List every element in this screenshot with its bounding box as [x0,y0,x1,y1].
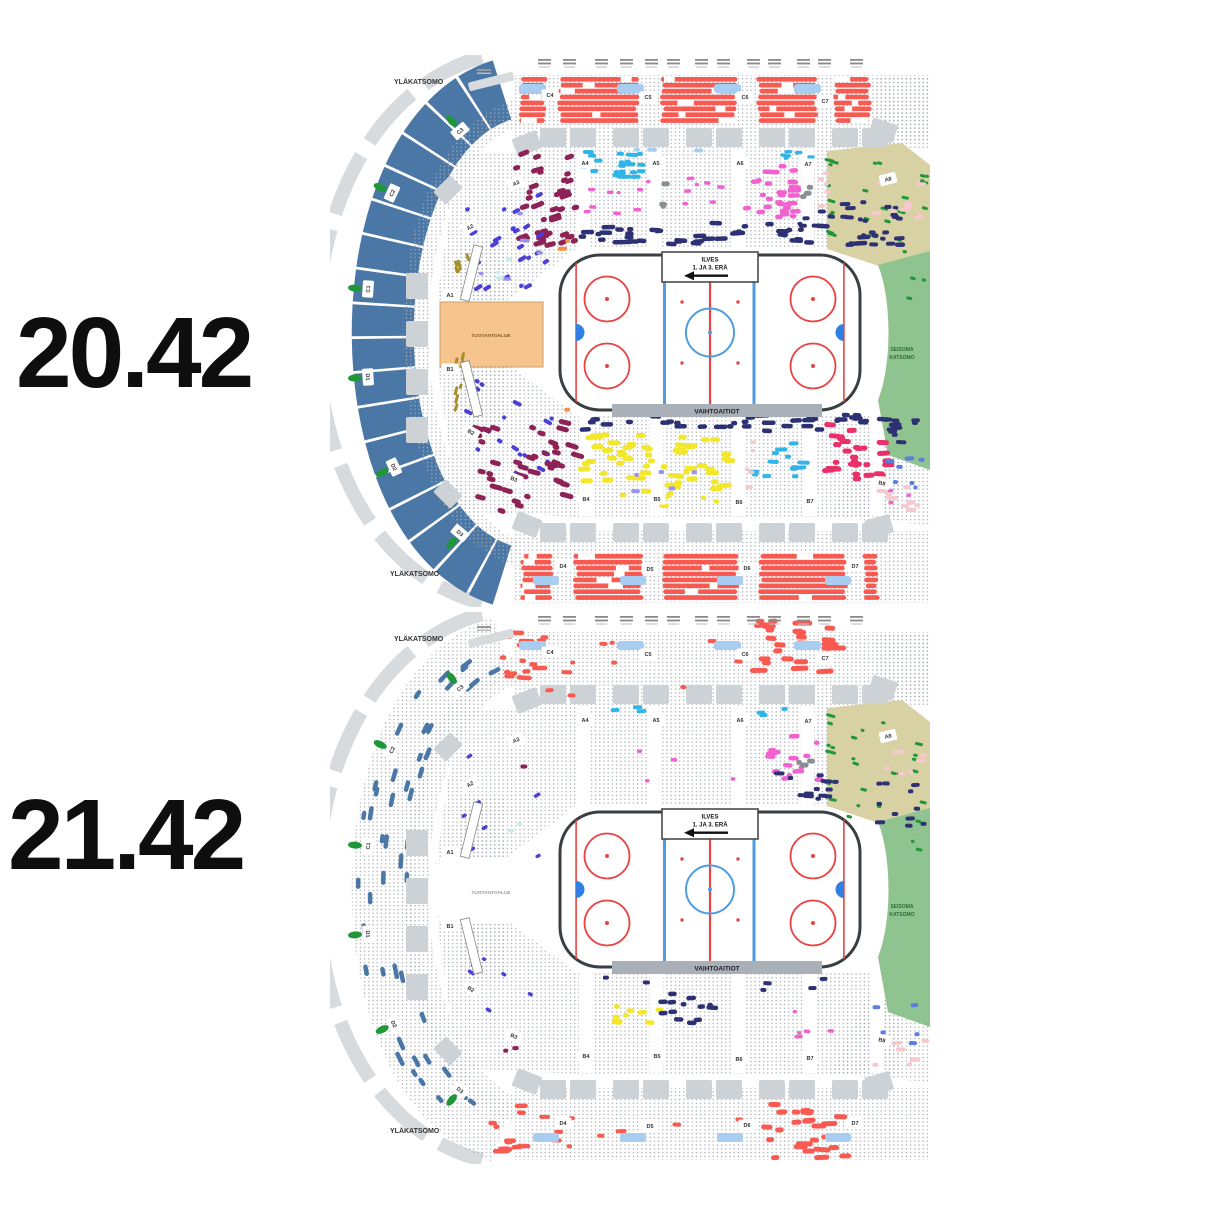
seat-pill [666,241,677,246]
seat-pill [535,853,542,859]
gate-sign-underline [539,623,550,624]
seat-pill [834,418,840,423]
seat-pill [798,222,803,226]
seat-pill [500,655,507,660]
section-label-text: D6 [743,1123,750,1129]
sky-patch [714,84,741,93]
seat-pill [626,1008,634,1013]
seat-pill [606,455,617,461]
sold-row [664,107,737,112]
sold-row [560,95,639,100]
section-label-text: A1 [446,850,453,856]
seat-pill [637,1010,647,1015]
neutral-faceoff-dot [736,918,739,921]
gate-sign-line [645,59,658,61]
seat-pill [701,437,710,442]
seat-pill [614,170,624,174]
sky-patch [533,1133,559,1142]
attack-arrow-shaft [692,832,728,834]
seat-pill [722,451,732,457]
seat-pill [588,188,595,192]
walkway-block [406,417,428,443]
seat-pill [824,422,836,428]
seat-pill [855,445,868,451]
seat-pill [594,159,603,163]
gate-sign-underline [798,66,809,67]
seat-pill [496,271,500,275]
seat-pill [807,185,814,190]
seat-pill [637,749,642,753]
seat-pill [862,219,868,223]
gate-sign-line [818,616,831,618]
walkway-block [613,523,639,542]
gate-sign-line [850,616,863,618]
sold-row [577,572,644,577]
seat-pill [761,1124,773,1130]
walkway-block [686,128,712,147]
seat-pill [667,1000,676,1005]
seat-pill [802,418,815,423]
row-gap [799,595,812,600]
seat-pill [590,169,598,173]
walkway-block [759,1080,785,1099]
seat-pill [776,190,787,195]
tier-label-bottom: YLÄKATSOMO [390,1127,440,1135]
standing-label: KATSOMO [889,355,914,361]
seat-pill [709,200,716,204]
gate-sign-underline [596,623,607,624]
sold-row [756,101,814,106]
seat-pill [714,236,728,241]
section-label-B7: B7 [802,1053,819,1064]
seat-pill [846,815,852,819]
seat-cluster-maroon [520,764,527,768]
walkway-block [686,685,712,704]
seat-pill [804,240,814,245]
seat-pill [767,460,778,465]
seat-pill [522,239,529,243]
seat-pill [911,783,920,787]
seat-pill [821,1121,838,1127]
gate-sign-line [595,620,608,622]
walkway-block [613,685,639,704]
faceoff-dot [811,364,815,368]
gate-sign-underline [621,66,632,67]
seat-pill [914,503,920,507]
row-gap [784,112,794,117]
seat-pill [626,420,633,425]
seat-pill [597,1134,604,1138]
row-gap [524,560,535,565]
seat-pill [788,756,799,761]
gate-sign-line [717,620,730,622]
seat-pill [588,154,596,158]
seat-pill [777,202,786,207]
seat-pill [742,424,752,429]
bench-label: VAIHTOAITIOT [694,966,739,973]
sky-patch [714,641,741,650]
seat-pill [762,474,771,478]
seat-pill [742,420,749,425]
seat-pill [800,1108,811,1114]
section-label-text: A5 [652,718,659,724]
gate-sign-underline [646,623,657,624]
section-label-text: A7 [804,719,811,725]
faceoff-dot [811,921,815,925]
seat-pill [800,194,807,199]
gate-sign-underline [668,623,679,624]
seat-pill [630,170,637,174]
seat-pill [603,976,609,980]
seat-pill [705,467,715,472]
seat-pill [863,472,874,477]
seat-pill [667,491,674,496]
seat-pill [788,180,799,185]
section-label-text: C6 [741,652,748,658]
seat-pill [833,442,842,447]
gate-sign-line [850,63,863,65]
section-label-C7: C7 [817,96,834,107]
bench-label: VAIHTOAITIOT [694,409,739,416]
section-label-B1: B1 [442,921,459,932]
seat-pill [517,822,522,826]
seat-pill [777,232,787,237]
sold-row [558,107,637,112]
seat-pill [578,466,591,472]
seat-pill [898,772,906,776]
seat-pill [616,1129,627,1133]
section-label-D6: D6 [739,563,756,574]
walkway-block [643,685,669,704]
seat-map-snapshot-2[interactable]: C3C2C1D1D2D3C4C5C6C7A3A4A5A6A7A8A2A1B1B2… [330,612,930,1164]
upper-left-fan [436,705,576,864]
gate-sign-underline [769,66,780,67]
end-zone-period: 1. JA 3. ERÄ [692,822,728,829]
sold-row [759,118,816,123]
sold-row [573,560,642,565]
seat-pill [860,200,866,204]
seat-pill [826,172,830,176]
seat-pill [710,437,720,442]
seat-pill [892,750,899,754]
gate-sign-underline [748,66,759,67]
seat-pill [763,981,772,985]
sold-row [864,595,879,600]
seat-pill [768,1102,781,1107]
section-label-C6: C6 [737,92,754,103]
seat-pill [802,216,809,220]
section-label-D4: D4 [555,1118,572,1129]
section-label-D4: D4 [555,561,572,572]
section-label-text: B4 [582,1054,590,1060]
seat-pill [756,178,762,183]
gate-sign-underline [621,623,632,624]
seat-pill [807,155,814,159]
gate-sign-underline [819,66,830,67]
seat-pill [637,169,646,173]
sky-patch [533,576,559,585]
seat-pill [643,464,650,469]
seat-pill [842,413,851,418]
gate-sign-line [695,63,708,65]
seat-pill [697,424,707,429]
seat-pill [905,816,915,820]
gate-sign-underline [769,623,780,624]
sold-row [524,589,551,594]
seat-pill [693,233,706,238]
seat-pill [760,193,766,198]
seat-pill [659,470,665,474]
seat-pill [858,420,869,425]
gate-sign-line [717,616,730,618]
section-label-text: A4 [581,161,589,167]
section-label-B4: B4 [578,1051,595,1062]
seat-pill [624,235,633,240]
seat-pill [792,474,799,478]
seat-pill [818,209,826,213]
seat-pill [637,238,647,243]
gate-sign-line [717,59,730,61]
tier-label-top: YLÄKATSOMO [394,635,444,643]
gate-sign-line [717,63,730,65]
seat-pill [824,182,829,186]
seat-pill [504,1138,516,1143]
seat-pill [876,782,882,786]
seat-pill [579,427,591,432]
faceoff-dot [605,364,609,368]
seat-pill [839,1153,851,1158]
row-gap [529,94,541,99]
seat-pill [691,470,697,474]
seat-pill [905,824,913,828]
gate-sign-line [768,616,781,618]
sold-row [864,566,878,571]
seat-pill [903,485,910,489]
sold-row [832,95,868,100]
standing-label: SEISOMA [890,904,913,910]
gate-sign-underline [564,623,575,624]
faceoff-dot [605,921,609,925]
seat-pill [697,1004,705,1009]
seat-pill [545,688,554,692]
seat-pill [661,181,670,186]
attack-arrow-shaft [692,275,728,277]
center-dot [708,888,712,892]
gate-sign-underline [819,623,830,624]
gate-sign-line [620,616,633,618]
gate-sign-line [563,620,576,622]
ring-seat-pill [381,871,386,885]
sold-row [758,95,817,100]
walkway-block [406,926,428,952]
gate-sign-underline [477,73,491,75]
seat-pill [886,242,896,246]
seat-pill [828,1029,835,1033]
seat-pill [612,1019,623,1024]
gate-sign-line [797,59,810,61]
seat-pill [906,493,911,497]
seat-pill [659,1011,668,1016]
seat-pill [648,458,656,463]
seat-pill [765,222,774,227]
seat-pill [794,659,808,664]
seat-pill [852,476,861,482]
seat-map-snapshot-1[interactable]: C3C2C1D1D2D3C4C5C6C7A3A4A5A6A7A8A2A1B1B2… [330,55,930,607]
aisle [870,972,883,1073]
seat-pill [804,1029,811,1033]
time-label-bottom: 21.42 [8,785,243,885]
gate-sign-line [538,59,551,61]
section-label-C6: C6 [737,649,754,660]
seat-pill [852,472,860,477]
sold-row [866,584,877,589]
center-dot [708,331,712,335]
sold-row [864,560,876,565]
seat-pill [844,215,854,220]
seat-pill [614,1004,620,1009]
sold-row [835,83,871,88]
seat-pill [570,660,575,664]
seat-pill [876,802,882,806]
seat-pill [711,479,719,484]
seat-pill [800,762,809,767]
section-label-text: C6 [741,95,748,101]
seat-pill [797,460,809,465]
seat-pill [830,645,847,650]
seat-pill [622,445,633,450]
seat-pill [660,420,671,425]
seat-pill [496,276,504,280]
row-gap [608,583,623,588]
seat-pill [634,147,640,151]
walkway-block [759,523,785,542]
sold-row [664,595,738,600]
end-zone-period: 1. JA 3. ERÄ [692,265,728,272]
row-gap [525,595,536,600]
seat-pill [775,447,788,451]
sky-patch [717,576,743,585]
seat-pill [786,228,793,233]
seat-pill [905,456,915,460]
section-label-text: C4 [546,93,554,99]
seat-pill [674,1017,684,1022]
row-gap [614,571,625,576]
seat-pill [801,424,813,429]
section-label-C4: C4 [542,647,559,658]
row-gap [710,583,718,588]
seat-pill [599,642,607,646]
seat-pill [581,230,594,235]
row-gap [621,77,632,82]
seat-pill [637,163,646,167]
seat-pill [661,464,668,469]
seat-pill [680,685,686,689]
row-gap [718,118,735,123]
seat-pill [847,428,857,433]
seat-pill [803,753,810,758]
seat-pill [885,459,894,463]
seat-pill [776,1110,785,1115]
seat-pill [888,430,897,434]
gate-sign-line [620,59,633,61]
row-gap [835,77,850,82]
seat-pill [692,240,700,245]
seat-pill [741,224,748,229]
seat-pill [858,217,863,221]
standing-label: SEISOMA [890,347,913,353]
seat-pill [721,456,731,461]
walkway-block [406,878,428,904]
seat-pill [788,193,800,198]
gate-sign-line [797,616,810,618]
production-label: TUOTANTOALUE [471,333,511,339]
row-gap [664,77,675,82]
walkway-block [406,974,428,1000]
gate-sign-line [768,620,781,622]
sold-row [758,589,845,594]
sold-row [864,578,878,583]
seat-pill [822,467,836,473]
row-gap [782,83,794,88]
gate-sign-underline [851,623,862,624]
seat-pill [774,642,786,648]
seat-pill [869,242,878,246]
gate-sign-line [850,59,863,61]
seat-pill [756,710,765,714]
seat-pill [619,160,625,164]
seat-pill [512,1046,518,1050]
section-label-text: D5 [646,1124,653,1130]
seat-pill [645,1020,655,1025]
seat-pill [817,773,824,777]
sold-row [521,566,552,571]
seat-pill [807,758,815,763]
gate-sign-line [477,626,491,628]
section-label-D6: D6 [739,1120,756,1131]
seat-pill [789,168,798,173]
seat-pill [756,210,765,215]
seat-pill [877,440,890,445]
neutral-faceoff-dot [680,857,683,860]
row-gap [797,554,813,559]
section-label-C5: C5 [640,92,657,103]
walkway-block [789,128,815,147]
seat-pill [882,781,890,785]
seat-pill [772,750,780,755]
end-zone-team: ILVES [702,815,719,821]
seat-pill [646,180,651,184]
seat-pill [600,471,608,476]
sold-row [835,107,872,112]
gate-sign-line [667,620,680,622]
seat-pill [601,225,615,230]
seat-pill [585,435,595,440]
seat-pill [896,1047,906,1052]
sold-row [836,89,869,94]
seat-pill [617,450,626,455]
seat-pill [909,1041,917,1045]
section-label-B6: B6 [731,1054,748,1065]
row-gap [528,554,536,559]
seat-pill [783,763,793,768]
seat-pill [532,666,547,671]
seat-pill [714,425,727,430]
walkway-block [540,128,566,147]
seat-pill [668,486,675,490]
seat-pill [686,476,698,481]
gate-sign-underline [696,623,707,624]
walkway-block [540,685,566,704]
